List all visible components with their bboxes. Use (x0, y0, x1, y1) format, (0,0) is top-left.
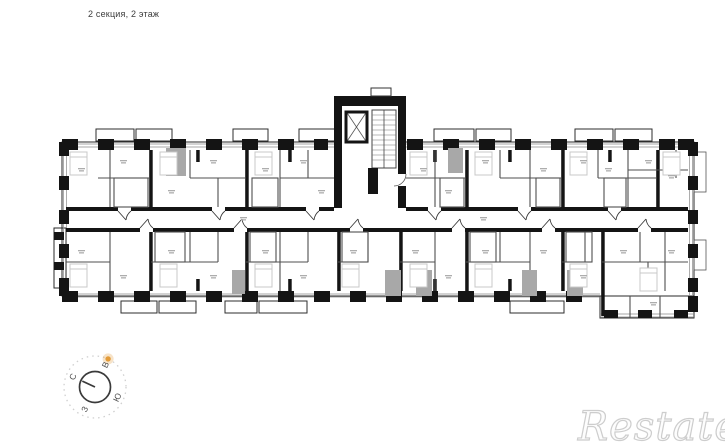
core (334, 88, 406, 208)
compass: С В Ю З (55, 347, 135, 427)
staircase-icon (372, 110, 396, 168)
compass-north-label: С (67, 372, 79, 382)
elevator-icon (346, 112, 367, 142)
compass-west-label: З (79, 405, 90, 414)
corridor-walls (66, 206, 688, 233)
door-arcs (118, 211, 651, 228)
canvas: 2 секция, 2 этаж (0, 0, 725, 444)
balconies-bottom (121, 301, 564, 313)
watermark-logo: Restate (578, 404, 725, 444)
compass-south-label: Ю (111, 391, 124, 403)
